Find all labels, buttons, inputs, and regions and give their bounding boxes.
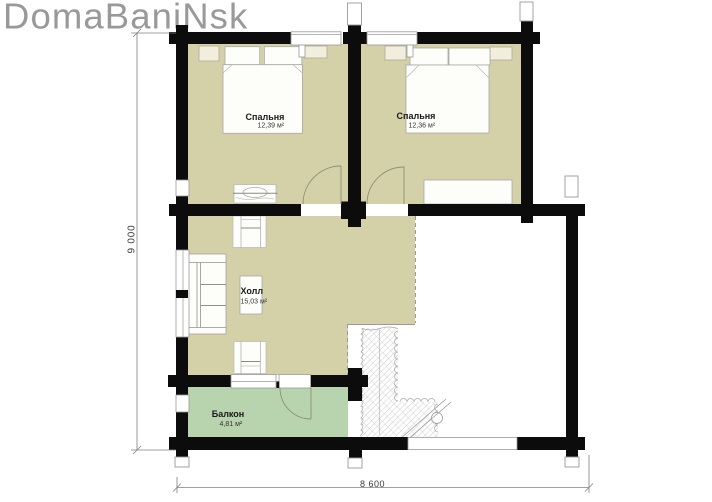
svg-text:4,81 м²: 4,81 м² [220, 421, 243, 428]
svg-text:15,03 м²: 15,03 м² [241, 299, 268, 306]
svg-text:Холл: Холл [241, 286, 264, 296]
svg-text:9 000: 9 000 [127, 224, 138, 253]
svg-text:Балкон: Балкон [212, 409, 245, 419]
svg-text:12,39 м²: 12,39 м² [258, 123, 285, 130]
svg-text:8 600: 8 600 [360, 479, 385, 489]
svg-text:Спальня: Спальня [246, 112, 285, 122]
svg-text:Спальня: Спальня [397, 111, 436, 121]
svg-text:12,36 м²: 12,36 м² [409, 123, 436, 130]
svg-text:DomaBaniNsk: DomaBaniNsk [3, 0, 248, 37]
